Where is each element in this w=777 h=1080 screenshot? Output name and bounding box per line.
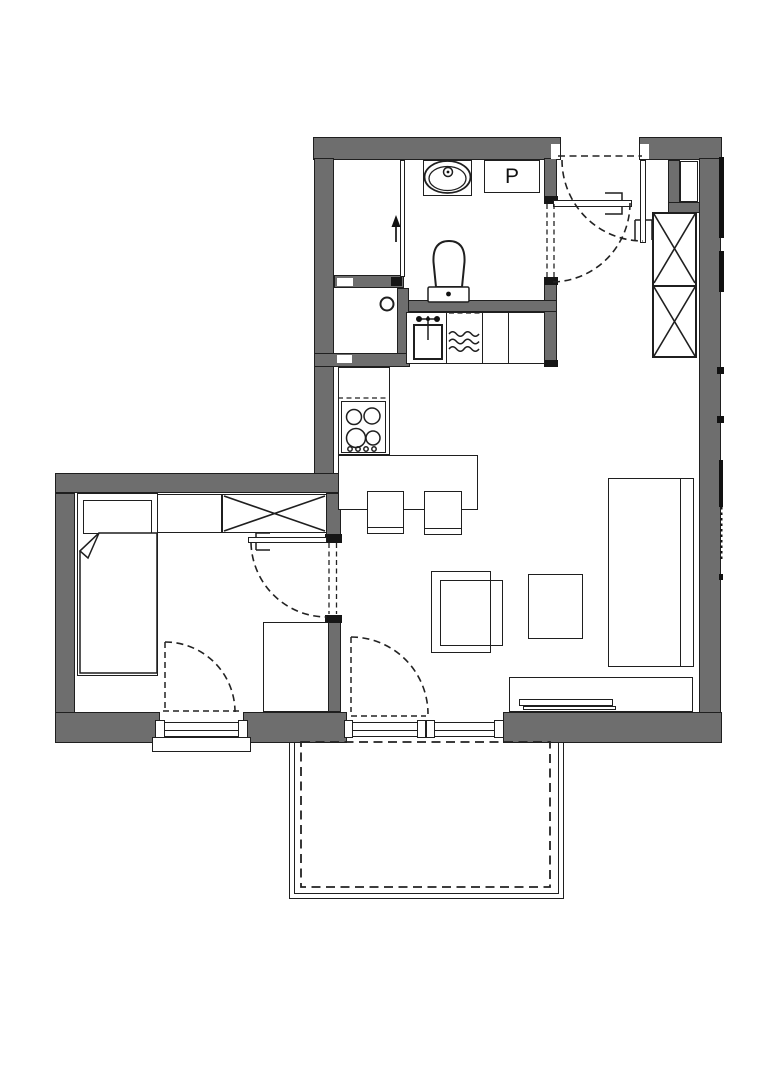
section-mark [717,367,724,374]
desk [263,622,329,712]
window-end-block [494,720,504,738]
window-end-block [238,720,248,738]
drain-circle-icon [381,298,394,311]
section-mark [719,574,723,580]
wall-cap [325,534,342,543]
washbasin-counter [423,160,472,196]
entrance-jamb-left [551,144,560,159]
bar-stool-1 [367,491,404,534]
wall-bathroom-left [314,158,334,478]
bathroom-door-leaf [553,200,632,207]
wardrobe-shelf-line [652,285,697,287]
shower-glass-end-cap [391,277,402,286]
entrance-jamb-right [640,144,649,159]
window-end-block [426,720,435,738]
bedroom-wardrobe [222,494,327,533]
wall-bottom-2 [243,712,347,743]
section-mark [719,251,724,292]
duct-shaft [680,161,698,202]
floor-plan: P [0,0,777,1080]
wall-notch [337,355,352,363]
wall-bottom-3 [503,712,722,743]
counter-divider [446,313,447,363]
wall-cap [544,360,558,367]
armchair [528,574,583,639]
window-end-block [344,720,353,738]
counter-divider [508,313,509,363]
window-end-block [417,720,426,738]
wall-hall-lower [544,284,557,367]
bedroom-door-leaf [248,537,327,543]
tv-base [523,706,616,710]
wall-top-left [313,137,561,160]
sofa [608,478,694,667]
wall-hall-upper [544,158,557,200]
wall-top-right [639,137,722,160]
section-mark [719,157,724,238]
nightstand [157,494,222,533]
bedroom-window-sill [152,737,251,752]
balcony-door-leaf-1 [347,722,424,737]
tv [519,699,613,706]
counter-divider [482,313,483,363]
kitchen-sink-basin [413,324,443,360]
bedroom-door-swing-arc [251,543,327,617]
bedroom-window-frame [160,722,243,737]
cooktop [341,401,386,453]
bathroom-door-swing-arc [551,203,630,282]
balcony-door-leaf-2 [426,722,503,737]
wall-cap [544,277,558,285]
wall-right [699,158,721,743]
coffee-table-inner [440,580,503,646]
washer-box: P [484,160,540,193]
hall-wardrobe [652,212,697,358]
bed-pillow [83,500,152,534]
washer-label: P [505,165,519,189]
section-mark [719,460,723,507]
shower-glass [400,160,405,277]
section-mark [717,416,724,423]
bar-stool-2 [424,491,462,535]
wall-notch [337,278,353,286]
wall-bedroom-left [55,493,75,743]
wall-bottom-1 [55,712,160,743]
wall-bathroom-south [406,300,557,312]
window-end-block [155,720,165,738]
balcony-door-swing-arc [351,637,428,714]
entrance-door-leaf [640,160,646,243]
wall-washer-room-bottom [314,353,410,367]
bedroom-window-swing-arc [165,642,235,712]
toilet [428,241,469,302]
balcony-outline-inner [294,742,559,894]
wall-bedroom-top [55,473,342,493]
